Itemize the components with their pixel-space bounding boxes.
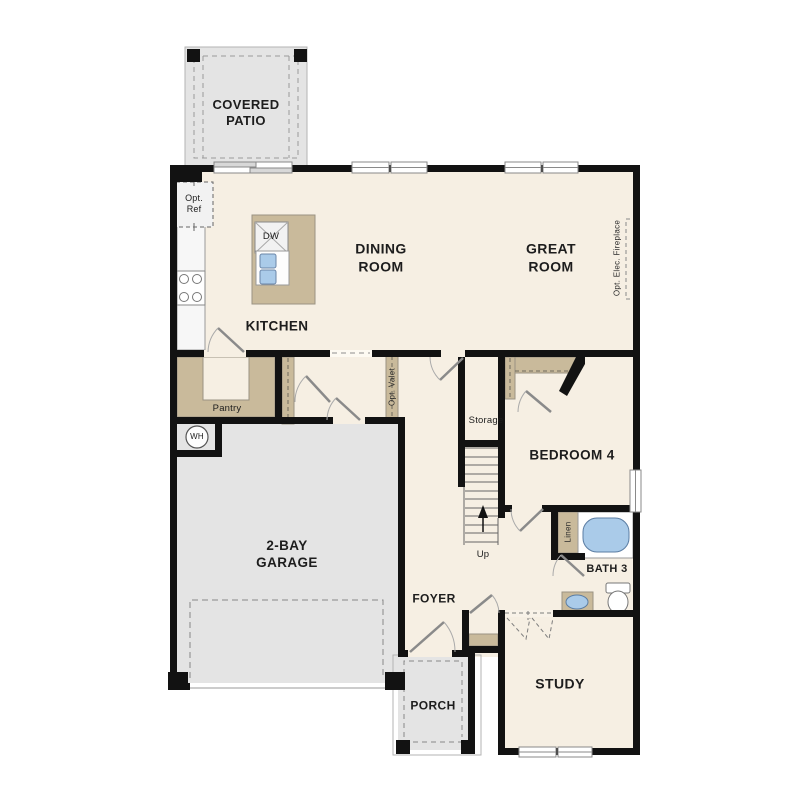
room-label-bedroom-4: BEDROOM 4 — [529, 448, 614, 465]
porch-post-left — [396, 740, 410, 754]
porch-post-right — [461, 740, 475, 754]
vanity-sink-icon — [566, 595, 588, 609]
closet-side-shelf — [505, 357, 515, 399]
room-label-covered-patio: COVERED PATIO — [212, 97, 279, 130]
room-label-kitchen: KITCHEN — [246, 319, 309, 336]
annotation-stairs-up: Up — [477, 549, 490, 561]
annotation-opt-ref: Opt. Ref — [185, 193, 203, 216]
room-label-great-room: GREAT ROOM — [526, 241, 576, 276]
patio-post-left — [187, 49, 200, 62]
annotation-opt-valet: Opt. Valet — [388, 368, 397, 406]
room-label-bath-3: BATH 3 — [586, 563, 627, 577]
sink-basin-bottom — [260, 270, 276, 284]
floor-plan-drawing — [0, 0, 810, 810]
annotation-opt-elec-fireplace: Opt. Elec. Fireplace — [613, 220, 622, 296]
foyer-closet-shelf — [469, 634, 498, 646]
bedroom-hall-floor — [398, 350, 640, 617]
sink-basin-top — [260, 254, 276, 268]
room-label-study: STUDY — [535, 675, 584, 693]
bathtub-icon — [583, 518, 629, 552]
room-label-porch: PORCH — [410, 699, 455, 714]
room-label-storage: Storage — [469, 415, 504, 427]
patio-post-right — [294, 49, 307, 62]
room-label-pantry: Pantry — [213, 403, 242, 415]
room-label-dining-room: DINING ROOM — [355, 241, 406, 276]
annotation-dishwasher: DW — [263, 231, 279, 243]
annotation-linen: Linen — [564, 521, 573, 542]
room-label-foyer: FOYER — [412, 592, 455, 607]
toilet-bowl-icon — [608, 591, 628, 613]
room-label-garage: 2-BAY GARAGE — [256, 538, 318, 572]
annotation-water-heater: WH — [190, 432, 204, 442]
floor-plan: COVERED PATIO DINING ROOM GREAT ROOM KIT… — [0, 0, 810, 810]
